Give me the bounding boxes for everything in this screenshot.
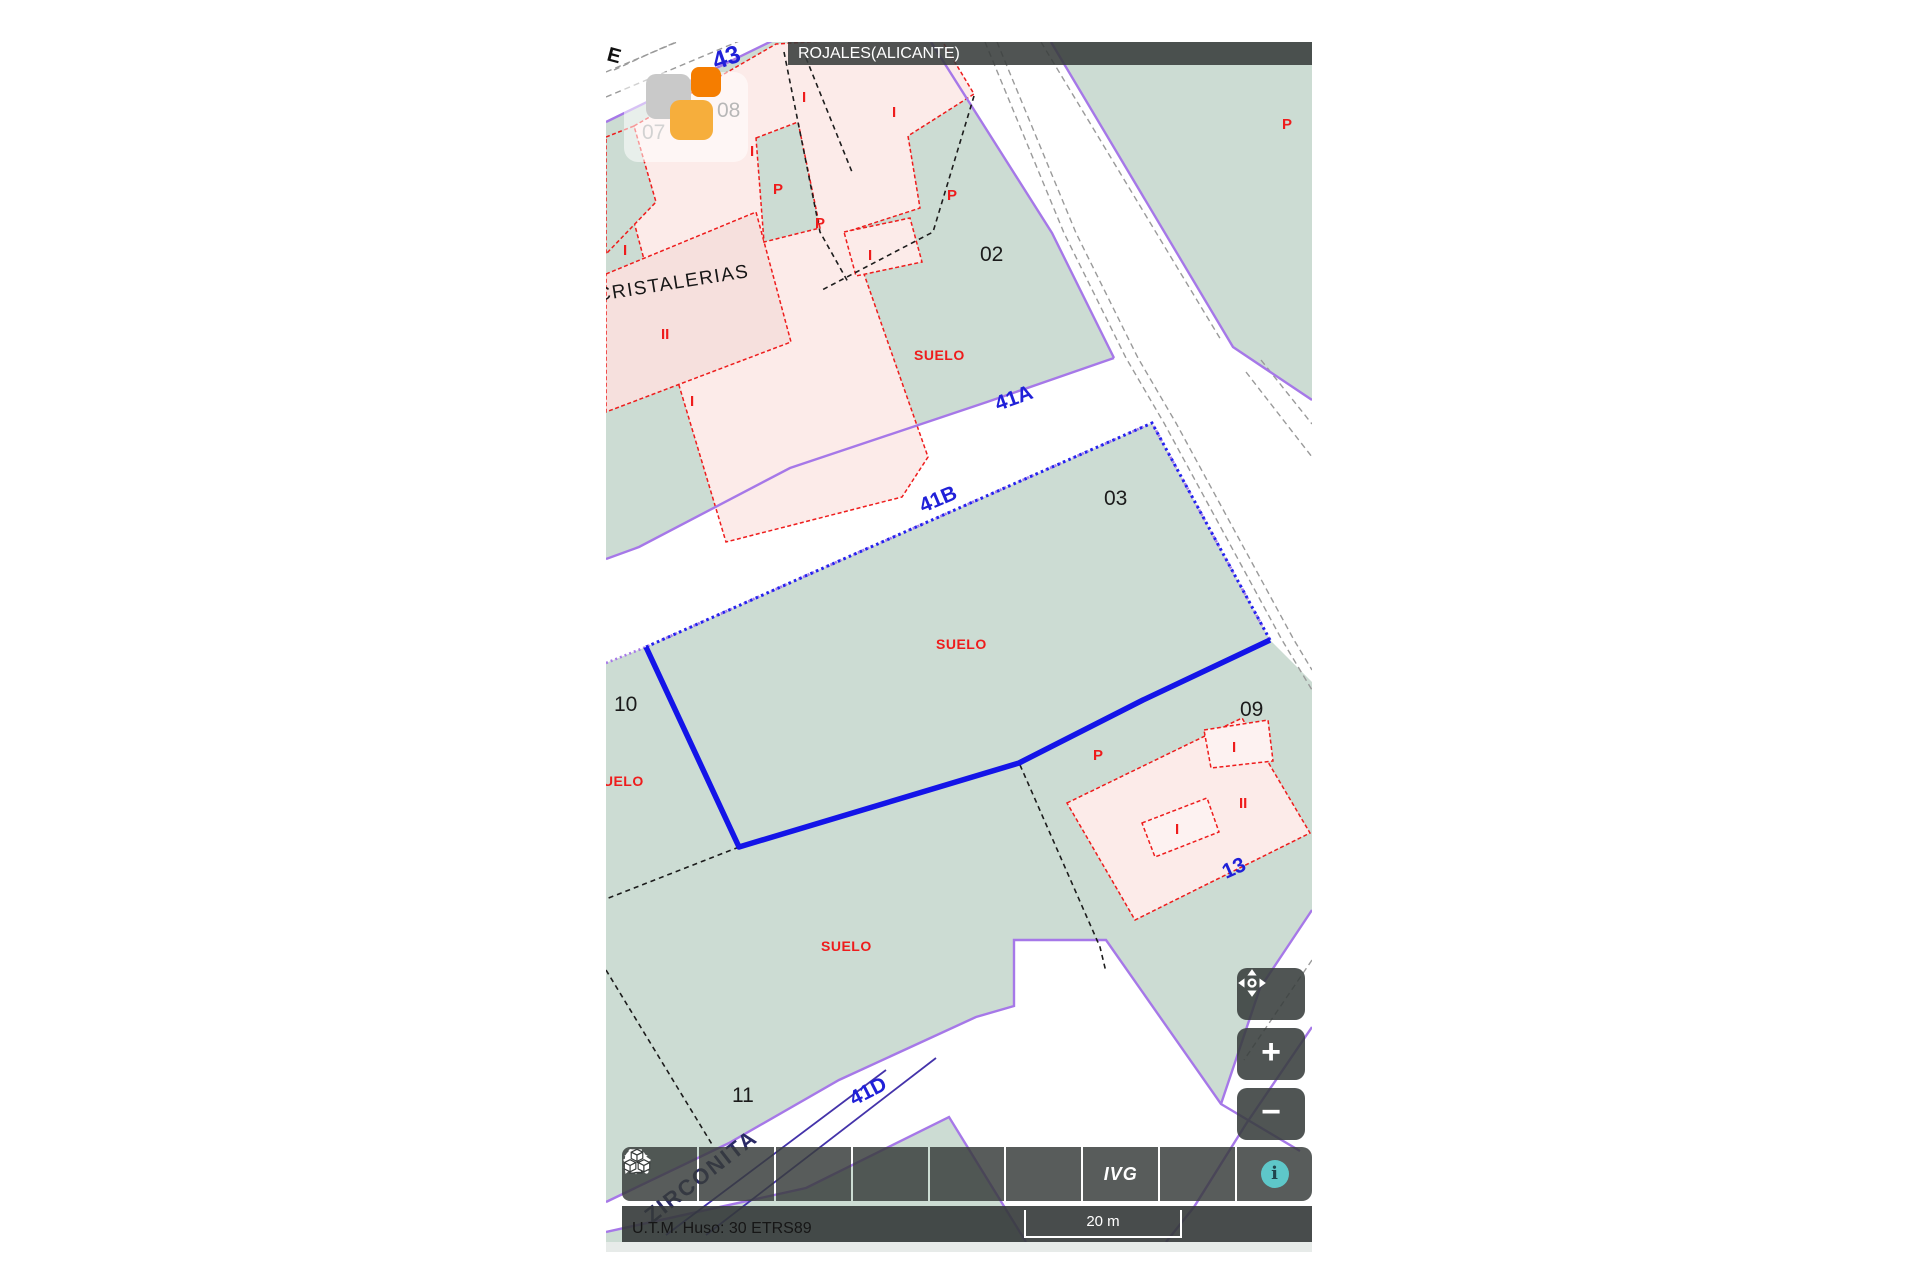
- mark-i: I: [1175, 821, 1179, 838]
- print-button[interactable]: [930, 1147, 1005, 1201]
- parcel-number-10: 10: [614, 693, 637, 716]
- crs-label: U.T.M. Huso: 30 ETRS89: [632, 1220, 812, 1238]
- ivg-button[interactable]: IVG: [1083, 1147, 1158, 1201]
- pan-button[interactable]: [1237, 968, 1305, 1020]
- mark-i: I: [802, 89, 806, 106]
- mark-ii: II: [1239, 795, 1247, 812]
- mark-i: I: [892, 104, 896, 121]
- zoom-out-button[interactable]: −: [1237, 1088, 1305, 1140]
- mark-i: I: [623, 242, 627, 259]
- info-button[interactable]: i: [1237, 1147, 1312, 1201]
- mark-i: I: [750, 143, 754, 160]
- suelo-label: SUELO: [821, 938, 872, 954]
- mark-p: P: [1282, 116, 1292, 133]
- parcel-number-03: 03: [1104, 487, 1127, 510]
- parcel-report-button[interactable]: P: [1006, 1147, 1081, 1201]
- suelo-label: SUELO: [914, 347, 965, 363]
- scale-label: 20 m: [1086, 1213, 1119, 1230]
- mark-ii: II: [661, 326, 669, 343]
- map-toolbar: P IVG i: [622, 1147, 1312, 1201]
- marker-orange[interactable]: [691, 67, 721, 97]
- mark-i: I: [868, 247, 872, 264]
- 3d-models-button[interactable]: [1160, 1147, 1235, 1201]
- mark-p: P: [773, 181, 783, 198]
- measure-width-button[interactable]: [853, 1147, 928, 1201]
- suelo-label: SUELO: [936, 636, 987, 652]
- ivg-label: IVG: [1104, 1164, 1138, 1185]
- mark-p: P: [1093, 747, 1103, 764]
- pan-icon: [1237, 968, 1267, 998]
- mark-p: P: [947, 187, 957, 204]
- status-bar: U.T.M. Huso: 30 ETRS89 20 m: [622, 1206, 1312, 1242]
- mark-p: P: [815, 215, 825, 232]
- scale-bar: 20 m: [1024, 1210, 1182, 1238]
- zoom-controls: + −: [1237, 968, 1305, 1148]
- map-bottom-strip: [606, 1242, 1312, 1252]
- parcel-number-11: 11: [732, 1084, 754, 1107]
- search-button[interactable]: [699, 1147, 774, 1201]
- minus-icon: −: [1261, 1095, 1281, 1129]
- parcel-number-02: 02: [980, 243, 1003, 266]
- plus-icon: +: [1261, 1035, 1281, 1069]
- municipality-bar: ROJALES(ALICANTE): [788, 42, 1312, 65]
- suelo-label: SUELO: [606, 773, 644, 789]
- marker-amber[interactable]: [670, 100, 713, 140]
- info-icon: i: [1261, 1160, 1289, 1188]
- layers-button[interactable]: [776, 1147, 851, 1201]
- municipality-title: ROJALES(ALICANTE): [798, 45, 960, 62]
- parcel-number-09: 09: [1240, 698, 1263, 721]
- mark-i: I: [690, 393, 694, 410]
- map-canvas[interactable]: E 43 41A 41B 41D 13 ZIRCONITA 02 03 09 1…: [606, 42, 1312, 1242]
- mark-i: I: [1232, 739, 1236, 756]
- cadastral-map[interactable]: E 43 41A 41B 41D 13 ZIRCONITA 02 03 09 1…: [606, 42, 1312, 1252]
- zoom-in-button[interactable]: +: [1237, 1028, 1305, 1080]
- cubes-icon: [622, 1147, 652, 1177]
- catastro-viewer-page: E 43 41A 41B 41D 13 ZIRCONITA 02 03 09 1…: [0, 0, 1920, 1280]
